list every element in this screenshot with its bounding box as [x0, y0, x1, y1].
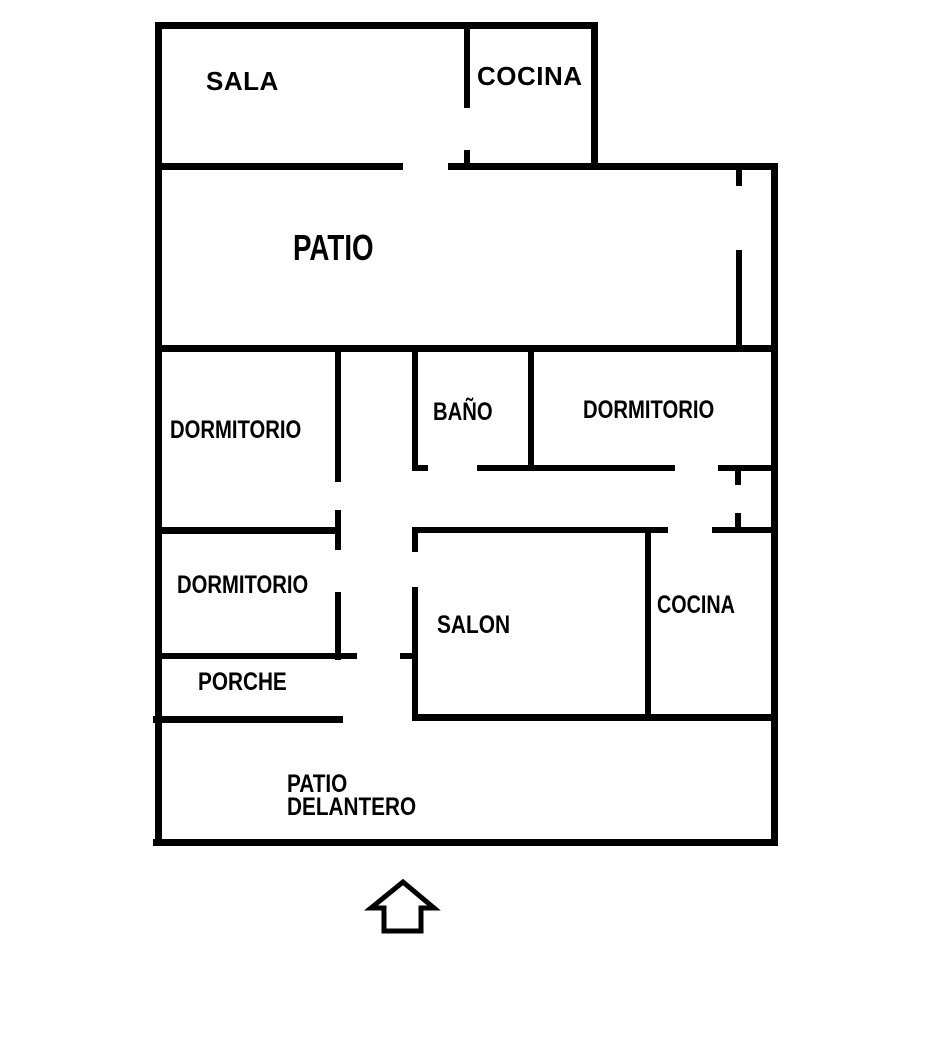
wall-salon-left-corner [412, 527, 418, 552]
room-label-cocina-top: COCINA [477, 63, 583, 89]
wall-salon-top [412, 527, 668, 533]
entrance-arrow-icon [362, 876, 444, 936]
room-label-patio-delantero: PATIO DELANTERO [287, 773, 416, 819]
wall-dormitorio-lower-bottom [155, 653, 357, 659]
wall-sala-cocina-divider-upper [464, 22, 470, 108]
wall-corridor-left-a [335, 348, 341, 482]
room-label-dormitorio-right: DORMITORIO [583, 398, 714, 423]
room-label-cocina-lower: COCINA [657, 593, 735, 618]
wall-closet-left-a [735, 465, 741, 485]
wall-patio-niche-upper [736, 170, 742, 186]
wall-bano-right [528, 352, 534, 471]
room-label-dormitorio-left-upper: DORMITORIO [170, 418, 301, 443]
wall-right-outer [771, 165, 778, 846]
wall-salon-cocina-bottom [412, 714, 778, 721]
room-label-dormitorio-left-lower: DORMITORIO [177, 573, 308, 598]
room-label-patio: PATIO [293, 230, 374, 266]
wall-dormitorios-divider [155, 527, 341, 534]
floor-plan-canvas: SALA COCINA PATIO DORMITORIO BAÑO DORMIT… [0, 0, 925, 1046]
room-label-porche: PORCHE [198, 670, 287, 695]
wall-top-outer [155, 22, 598, 29]
wall-bano-bottom [477, 465, 534, 471]
wall-bottom-outer [153, 839, 778, 846]
wall-patio-niche-lower [736, 250, 742, 351]
wall-salon-left-main [412, 587, 418, 720]
wall-dormitorio-right-bottom-a [528, 465, 675, 471]
room-label-sala: SALA [206, 68, 279, 94]
wall-top-section-right [591, 22, 598, 170]
wall-sala-bottom [155, 163, 403, 170]
room-label-salon: SALON [437, 613, 510, 638]
wall-bano-corner-tick [412, 465, 428, 471]
wall-dormitorio-right-bottom-b [718, 465, 775, 471]
wall-patio-top-right [448, 163, 778, 170]
wall-corridor-left-c [335, 592, 341, 660]
wall-cocina-lower-left [645, 527, 651, 720]
wall-closet-bottom [712, 527, 775, 533]
wall-porche-bottom [153, 716, 343, 723]
wall-bano-left [412, 352, 418, 471]
wall-patio-bottom [155, 345, 778, 352]
room-label-bano: BAÑO [433, 400, 493, 425]
